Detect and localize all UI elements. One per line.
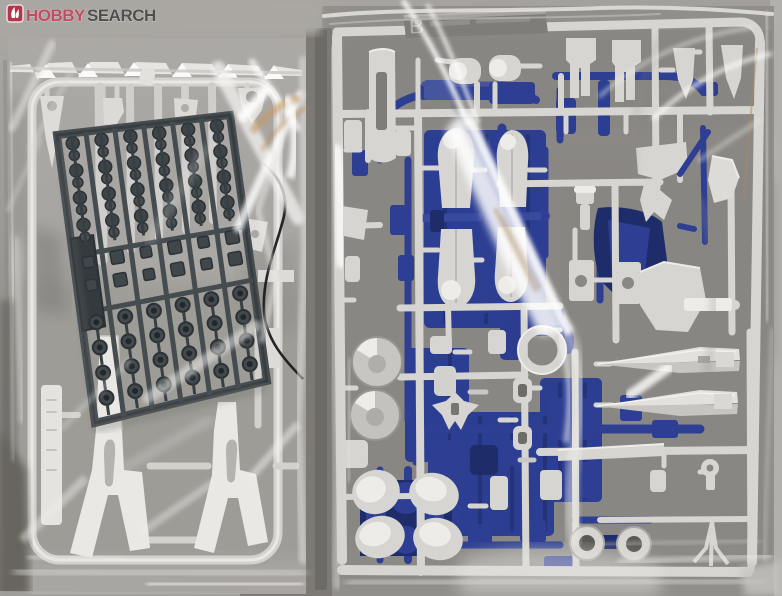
svg-text:SEARCH: SEARCH [87,6,156,25]
svg-text:HOBBY: HOBBY [26,6,86,25]
